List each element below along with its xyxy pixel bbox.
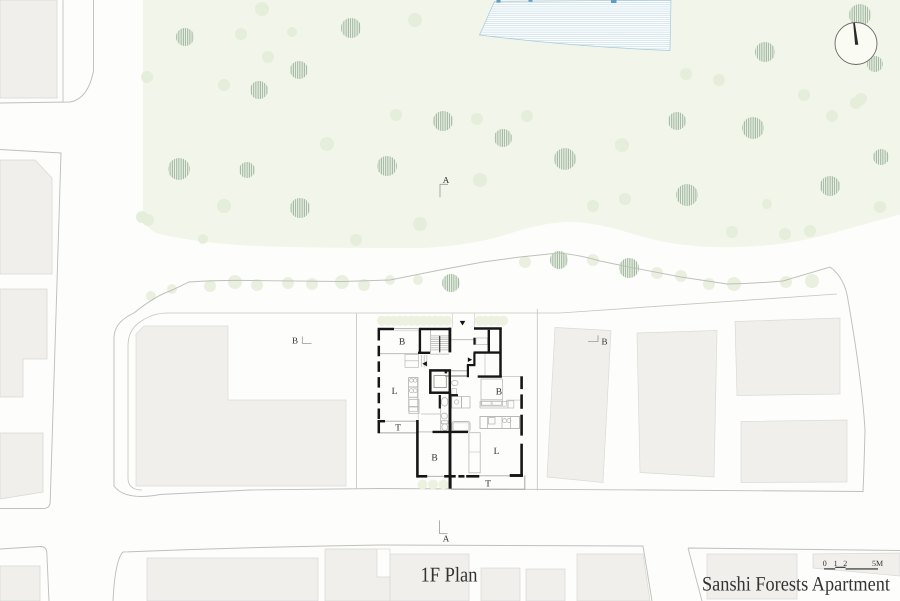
svg-text:L: L [392, 387, 398, 397]
svg-text:A: A [443, 175, 450, 185]
svg-text:B: B [292, 336, 298, 346]
svg-text:1: 1 [834, 559, 838, 568]
svg-text:A: A [443, 534, 450, 544]
svg-text:0: 0 [823, 559, 827, 568]
svg-text:B: B [431, 454, 437, 464]
svg-text:B: B [399, 338, 405, 348]
svg-text:T: T [395, 424, 401, 434]
svg-text:1F Plan: 1F Plan [421, 563, 478, 587]
svg-text:Sanshi Forests Apartment: Sanshi Forests Apartment [702, 573, 890, 595]
svg-text:L: L [494, 447, 500, 457]
svg-text:B: B [496, 388, 502, 398]
svg-text:2: 2 [843, 559, 847, 568]
svg-text:B: B [601, 337, 607, 347]
svg-text:5M: 5M [872, 559, 883, 568]
svg-text:T: T [485, 479, 491, 489]
